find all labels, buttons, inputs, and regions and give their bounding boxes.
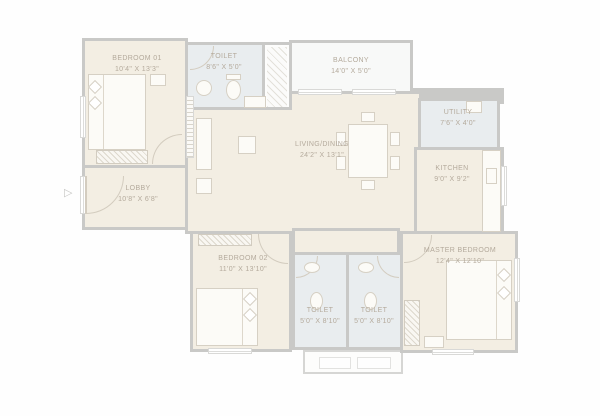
chair-icon: [390, 132, 400, 146]
room-dims: 5'0" X 8'10": [292, 317, 348, 328]
room-name: BEDROOM 02: [193, 254, 293, 265]
room-name: BEDROOM 01: [87, 54, 187, 65]
room-name: TOILET: [292, 306, 348, 317]
room-label-bedroom-01: BEDROOM 01 10'4" X 13'3": [87, 54, 187, 76]
room-dims: 10'4" X 13'3": [87, 65, 187, 76]
chair-icon: [361, 180, 375, 190]
bed-headboard-line: [496, 261, 497, 339]
room-dims: 12'4" X 12'10": [410, 257, 510, 268]
room-dims: 8'6" X 5'0": [184, 63, 264, 74]
room-label-master-bedroom: MASTER BEDROOM 12'4" X 12'10": [410, 246, 510, 268]
sofa-icon: [196, 118, 212, 170]
kitchen-counter-icon: [482, 150, 501, 232]
room-name: TOILET: [184, 52, 264, 63]
ledge-panel: [357, 357, 391, 369]
room-name: LIVING/DINING: [272, 140, 372, 151]
room-dims: 14'0" X 5'0": [301, 67, 401, 78]
room-dims: 10'8" X 6'8": [88, 195, 188, 206]
washbasin-icon: [196, 80, 212, 96]
window: [432, 349, 474, 355]
room-label-balcony: BALCONY 14'0" X 5'0": [301, 56, 401, 78]
sliding-door: [352, 89, 396, 95]
ledge-panel: [319, 357, 351, 369]
room-label-toilet-left: TOILET 5'0" X 8'10": [292, 306, 348, 328]
room-label-utility: UTILITY 7'6" X 4'0": [408, 108, 508, 130]
dresser-icon: [424, 336, 444, 348]
window: [80, 96, 86, 138]
toilet-wc-icon: [226, 80, 241, 100]
nightstand-icon: [150, 74, 166, 86]
sliding-door: [298, 89, 342, 95]
wardrobe-icon: [198, 234, 252, 246]
room-name: MASTER BEDROOM: [410, 246, 510, 257]
room-dims: 11'0" X 13'10": [193, 265, 293, 276]
room-name: LOBBY: [88, 184, 188, 195]
wardrobe-icon: [404, 300, 420, 346]
washbasin-icon: [358, 262, 374, 273]
armchair-icon: [196, 178, 212, 194]
room-label-toilet-top: TOILET 8'6" X 5'0": [184, 52, 264, 74]
bed-headboard-line: [103, 75, 104, 149]
main-door-leaf: [85, 176, 87, 214]
room-name: UTILITY: [408, 108, 508, 119]
entry-arrow-icon: ▷: [64, 188, 72, 199]
chair-icon: [390, 156, 400, 170]
room-dims: 5'0" X 8'10": [346, 317, 402, 328]
floor-plan: ▷ BEDROOM 01 10'4" X 13'3" TOILET 8'6" X…: [0, 0, 600, 416]
shaft-hatch: [267, 47, 287, 107]
room-name: TOILET: [346, 306, 402, 317]
washbasin-icon: [304, 262, 320, 273]
room-label-lobby: LOBBY 10'8" X 6'8": [88, 184, 188, 206]
chair-icon: [361, 112, 375, 122]
tv-unit-icon: [244, 96, 266, 108]
duct-hatch: [186, 96, 194, 158]
room-label-living-dining: LIVING/DINING 24'2" X 13'1": [272, 140, 372, 162]
room-dims: 24'2" X 13'1": [272, 151, 372, 162]
bottom-ledge: [303, 350, 403, 374]
window: [208, 348, 252, 354]
coffee-table-icon: [238, 136, 256, 154]
room-label-kitchen: KITCHEN 9'0" X 9'2": [402, 164, 502, 186]
room-dims: 7'6" X 4'0": [408, 119, 508, 130]
room-name: KITCHEN: [402, 164, 502, 175]
room-name: BALCONY: [301, 56, 401, 67]
room-label-toilet-right: TOILET 5'0" X 8'10": [346, 306, 402, 328]
window: [514, 258, 520, 302]
room-dims: 9'0" X 9'2": [402, 175, 502, 186]
wardrobe-icon: [96, 150, 148, 164]
room-label-bedroom-02: BEDROOM 02 11'0" X 13'10": [193, 254, 293, 276]
room-shaft: [262, 42, 292, 110]
